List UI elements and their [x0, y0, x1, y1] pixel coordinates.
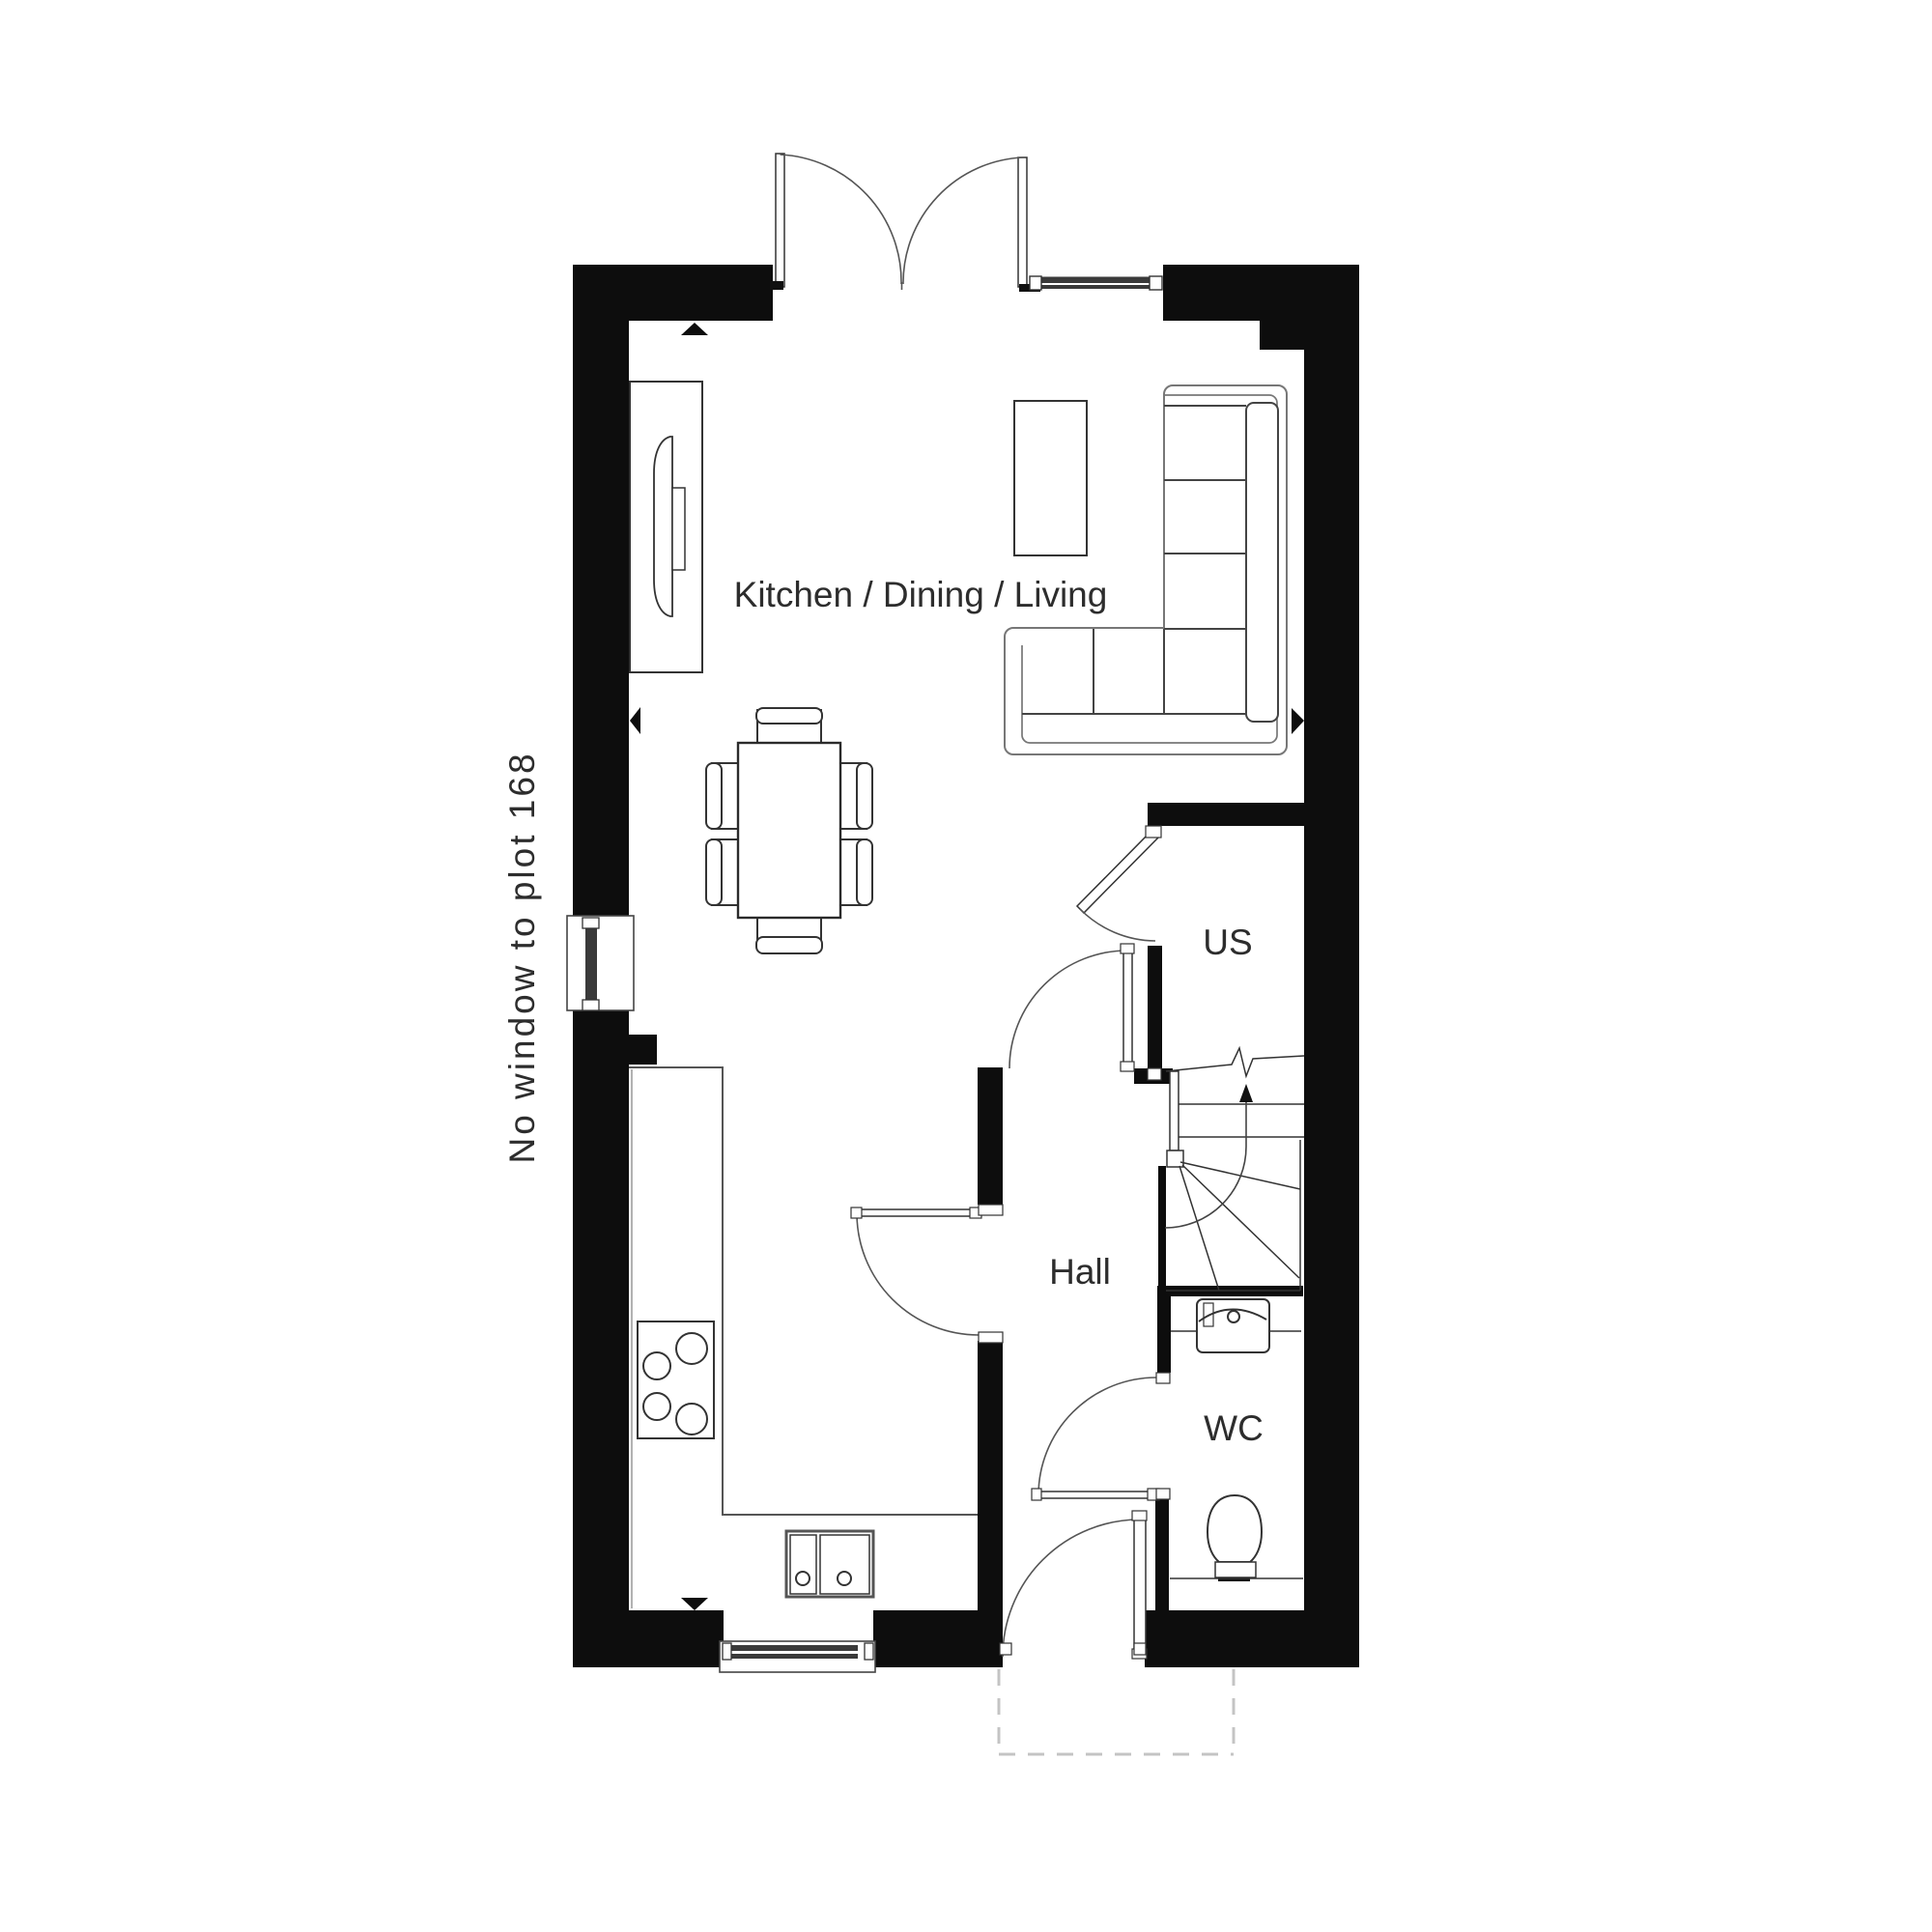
svg-text:No window to plot 168: No window to plot 168 [502, 751, 542, 1163]
svg-text:WC: WC [1204, 1408, 1264, 1448]
svg-text:Kitchen / Dining / Living: Kitchen / Dining / Living [734, 575, 1108, 614]
svg-text:Hall: Hall [1049, 1252, 1111, 1292]
svg-text:US: US [1203, 923, 1252, 962]
